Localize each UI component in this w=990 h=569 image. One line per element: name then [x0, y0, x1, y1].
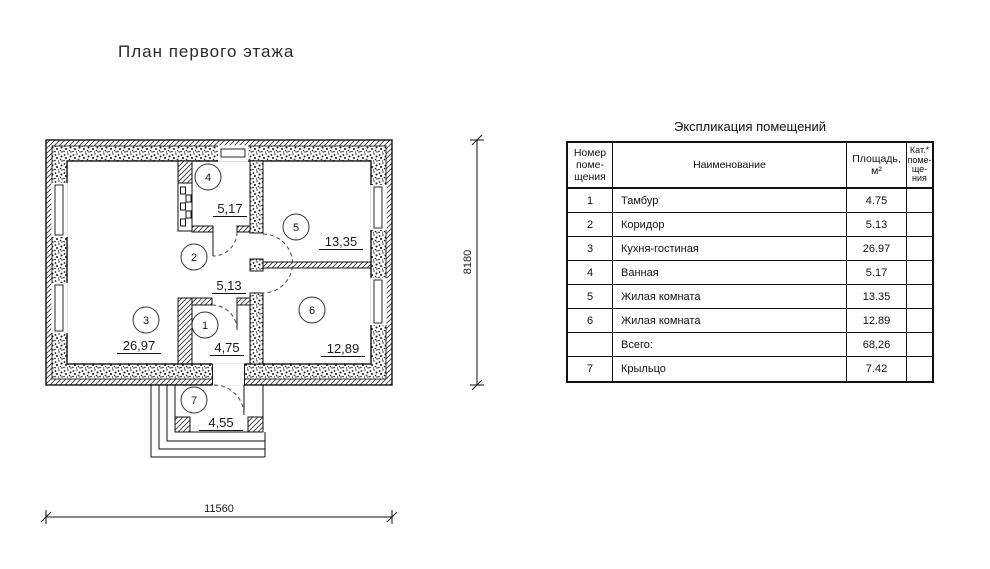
- door-bathroom: [213, 232, 237, 256]
- area-label-5: 13,35: [325, 234, 358, 249]
- row-2-name: Коридор: [613, 213, 847, 237]
- row-7-area: 7.42: [847, 357, 907, 381]
- room-number-4: 4: [205, 172, 211, 184]
- row-3-number: 3: [568, 237, 613, 261]
- row-6-name: Жилая комната: [613, 309, 847, 333]
- row-2-area: 5.13: [847, 213, 907, 237]
- room-number-6: 6: [309, 305, 315, 317]
- bathroom-wall-right: [237, 226, 250, 232]
- row-6-category: [907, 309, 932, 333]
- floor-plan: 1 2 3 4 5 6 7: [0, 0, 560, 569]
- row-1-category: [907, 189, 932, 213]
- row-2-number: 2: [568, 213, 613, 237]
- row-5-area: 13.35: [847, 285, 907, 309]
- room-badge-3: 3: [133, 307, 159, 333]
- tambour-wall-top-right: [237, 298, 250, 305]
- row-total-category: [907, 333, 932, 357]
- room-number-5: 5: [293, 222, 299, 234]
- door-entrance: [214, 385, 244, 415]
- tambour-wall-left: [178, 298, 192, 364]
- room-badge-2: 2: [181, 244, 207, 270]
- row-3-name: Кухня-гостиная: [613, 237, 847, 261]
- room-number-1: 1: [202, 320, 208, 332]
- row-4-name: Ванная: [613, 261, 847, 285]
- row-5-number: 5: [568, 285, 613, 309]
- area-label-3: 26,97: [123, 338, 156, 353]
- area-label-1: 4,75: [214, 340, 239, 355]
- room-divider-wall: [263, 262, 371, 268]
- area-label-7: 4,55: [208, 415, 233, 430]
- rooms-specification-table: Номер поме- щения Наименование Площадь, …: [566, 141, 934, 383]
- area-label-2: 5,13: [216, 278, 241, 293]
- window-right-2: [370, 278, 386, 325]
- tambour-wall-top-left: [192, 298, 212, 305]
- window-left-2: [51, 283, 67, 333]
- room-number-7: 7: [191, 395, 197, 407]
- room-badge-6: 6: [299, 297, 325, 323]
- room-number-2: 2: [191, 252, 197, 264]
- area-label-6: 12,89: [327, 341, 360, 356]
- porch-column-left: [175, 417, 190, 432]
- vent-shaft-wall: [178, 161, 192, 231]
- col-header-number: Номер поме- щения: [568, 143, 613, 189]
- col-header-name: Наименование: [613, 143, 847, 189]
- row-1-area: 4.75: [847, 189, 907, 213]
- row-4-area: 5.17: [847, 261, 907, 285]
- row-total-name: Всего:: [613, 333, 847, 357]
- dimension-height-label: 8180: [462, 250, 474, 274]
- row-6-number: 6: [568, 309, 613, 333]
- row-3-category: [907, 237, 932, 261]
- row-1-number: 1: [568, 189, 613, 213]
- room-badge-7: 7: [181, 387, 207, 413]
- row-2-category: [907, 213, 932, 237]
- row-6-area: 12.89: [847, 309, 907, 333]
- row-7-name: Крыльцо: [613, 357, 847, 381]
- row-4-category: [907, 261, 932, 285]
- central-wall-lower: [250, 293, 263, 364]
- row-7-number: 7: [568, 357, 613, 381]
- row-total-area: 68,26: [847, 333, 907, 357]
- row-5-name: Жилая комната: [613, 285, 847, 309]
- row-1-name: Тамбур: [613, 189, 847, 213]
- dimension-right: 8180: [462, 135, 484, 390]
- table-title: Экспликация помещений: [566, 119, 934, 134]
- window-left-1: [51, 183, 67, 237]
- central-wall-upper: [250, 161, 263, 233]
- drawing-sheet: План первого этажа: [0, 0, 990, 569]
- porch-column-right: [248, 417, 263, 432]
- room-badge-4: 4: [195, 164, 221, 190]
- area-label-4: 5,17: [217, 201, 242, 216]
- col-header-category: Кат.* поме- ще- ния: [907, 143, 932, 189]
- row-7-category: [907, 357, 932, 381]
- bathroom-wall-left: [192, 226, 213, 232]
- row-total-number: [568, 333, 613, 357]
- central-wall-pier: [250, 259, 263, 271]
- row-4-number: 4: [568, 261, 613, 285]
- window-right-1: [370, 185, 386, 230]
- room-number-3: 3: [143, 315, 149, 327]
- room-badge-5: 5: [283, 214, 309, 240]
- entrance-opening: [213, 363, 245, 386]
- dimension-width-label: 11560: [204, 503, 234, 515]
- window-top: [218, 145, 248, 161]
- row-5-category: [907, 285, 932, 309]
- dimension-bottom: 11560: [41, 503, 397, 524]
- col-header-area: Площадь, м²: [847, 143, 907, 189]
- room-badge-1: 1: [192, 312, 218, 338]
- row-3-area: 26.97: [847, 237, 907, 261]
